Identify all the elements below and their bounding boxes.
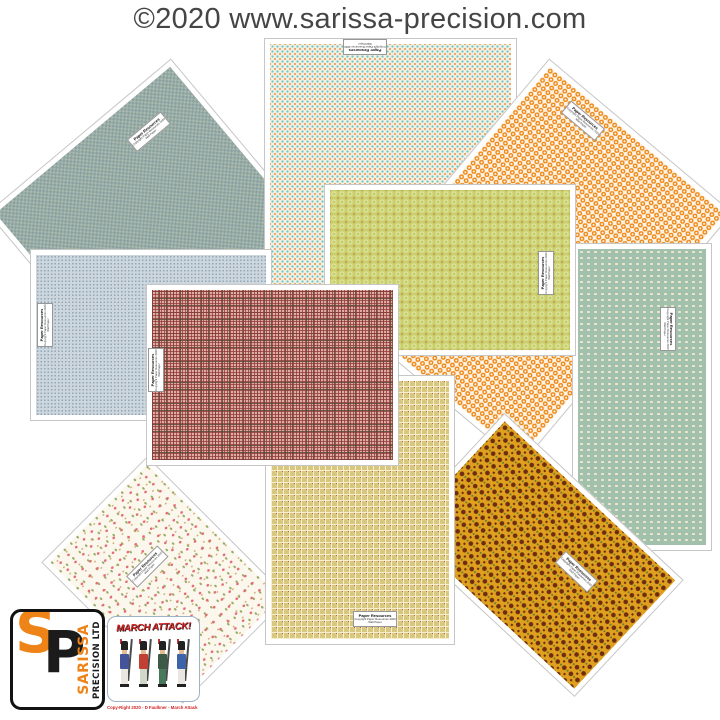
soldier-illustrations	[108, 639, 199, 691]
shako-hat-icon	[178, 641, 185, 650]
copyright-title: ©2020 www.sarissa-precision.com	[0, 0, 720, 38]
soldier-feet	[158, 684, 167, 687]
soldier-illustration	[118, 639, 132, 691]
soldier-coat	[177, 654, 186, 669]
paper-sheet-red-tartan: Paper Resources Copyright Paper Resource…	[146, 284, 399, 466]
soldier-feet	[139, 684, 148, 687]
march-attack-copyright: Copy-Right 2020 - D Faulkner - March Att…	[107, 705, 217, 710]
sarissa-vertical-text: SARISSA PRECISION LTD	[76, 612, 102, 707]
sheet-label-line3: Wall Paper	[548, 252, 551, 294]
soldier-illustration	[156, 639, 170, 691]
sheet-label-line3: Wall Paper	[158, 349, 161, 391]
shako-hat-icon	[159, 641, 166, 650]
soldier-illustration	[175, 639, 189, 691]
sheet-label: Paper Resources Copyright Paper Resource…	[343, 39, 387, 55]
sheet-label: Paper Resources Copyright Paper Resource…	[660, 307, 676, 351]
product-image-canvas: ©2020 www.sarissa-precision.com Paper Re…	[0, 0, 720, 720]
sheet-label: Paper Resources Copyright Paper Resource…	[353, 611, 397, 627]
soldier-illustration	[137, 639, 151, 691]
shako-hat-icon	[121, 641, 128, 650]
sarissa-precision-logo: S P SARISSA PRECISION LTD	[10, 609, 105, 710]
shako-hat-icon	[140, 641, 147, 650]
sheet-label-line3: Wall Paper	[47, 304, 50, 346]
soldier-coat	[158, 654, 167, 669]
soldier-feet	[120, 684, 129, 687]
march-attack-logo: MARCH ATTACK!	[107, 616, 200, 702]
sarissa-name: SARISSA	[76, 624, 92, 695]
soldier-feet	[177, 684, 186, 687]
soldier-trousers	[140, 669, 147, 684]
sarissa-precision-ltd: PRECISION LTD	[92, 621, 102, 699]
sheet-label: Paper Resources Copyright Paper Resource…	[37, 303, 53, 347]
soldier-coat	[120, 654, 129, 669]
march-attack-title: MARCH ATTACK!	[108, 620, 199, 634]
sheet-label-line3: Wall Paper	[354, 621, 396, 624]
soldier-trousers	[178, 669, 185, 684]
soldier-trousers	[121, 669, 128, 684]
sheet-label: Paper Resources Copyright Paper Resource…	[538, 251, 554, 295]
sheet-label: Paper Resources Copyright Paper Resource…	[148, 348, 164, 392]
soldier-trousers	[159, 669, 166, 684]
sheet-pattern	[152, 290, 393, 460]
soldier-coat	[139, 654, 148, 669]
